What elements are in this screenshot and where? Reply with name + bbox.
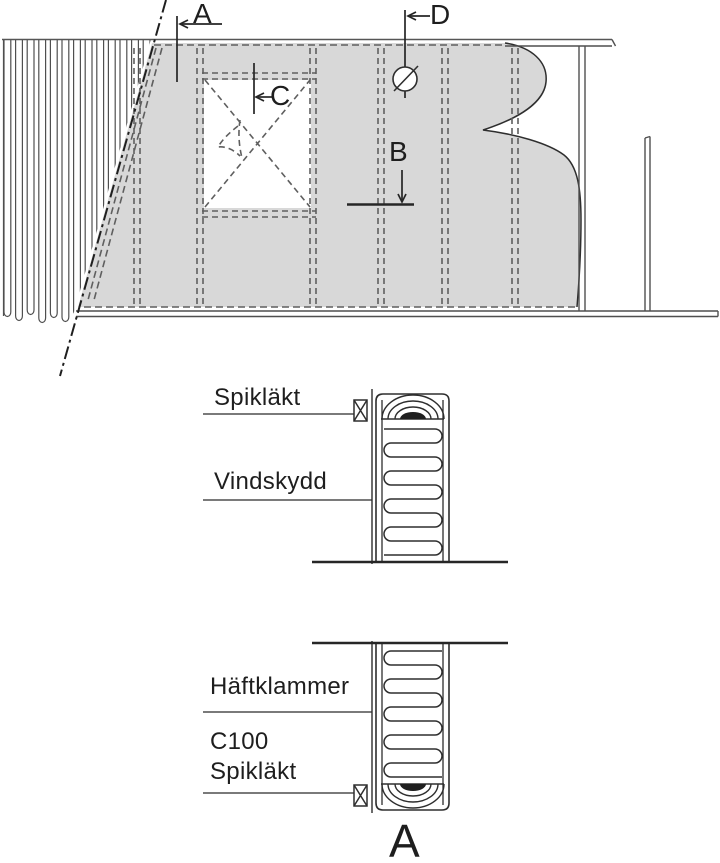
insulation-squiggle bbox=[384, 651, 442, 777]
detail-section-bottom bbox=[203, 641, 508, 813]
annotation-spiklakt-bottom: Spikläkt bbox=[210, 760, 296, 784]
elevation-view bbox=[2, 0, 718, 376]
batten-cross-section bbox=[354, 785, 367, 806]
annotation-c100: C100 bbox=[210, 730, 269, 754]
label-b: B bbox=[389, 138, 408, 166]
insulation-squiggle bbox=[384, 429, 442, 555]
annotation-vindskydd: Vindskydd bbox=[214, 470, 327, 494]
batten-cross-section bbox=[354, 400, 367, 421]
annotation-haftklammer: Häftklammer bbox=[210, 675, 349, 699]
wood-end-grain bbox=[381, 395, 444, 419]
drawing-linework bbox=[0, 0, 720, 863]
label-d: D bbox=[430, 1, 450, 29]
section-marker: A bbox=[389, 818, 420, 863]
wood-end-grain bbox=[381, 784, 444, 808]
annotation-spiklakt-top: Spikläkt bbox=[214, 386, 300, 410]
label-a: A bbox=[193, 0, 212, 28]
technical-drawing: A D C B Spikläkt Vindskydd Häftklammer C… bbox=[0, 0, 720, 863]
vent-hole-symbol bbox=[393, 66, 418, 91]
label-c: C bbox=[270, 82, 290, 110]
